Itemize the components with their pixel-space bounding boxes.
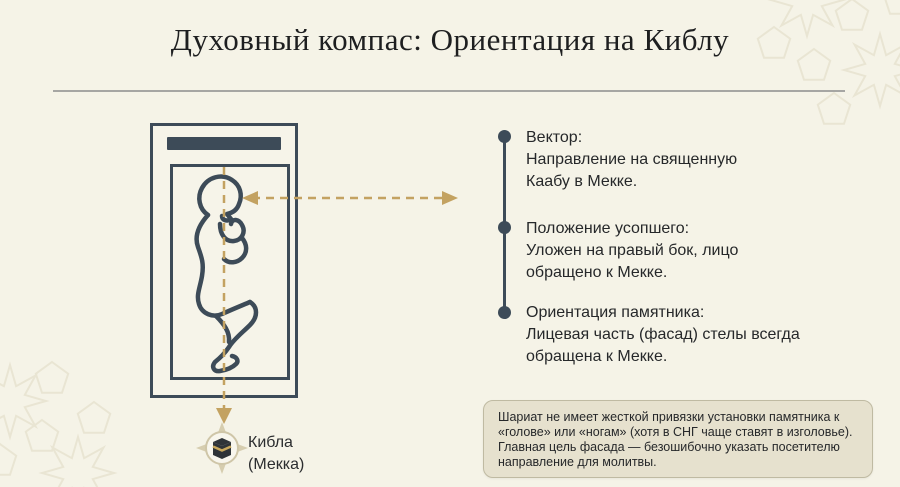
timeline-item-position: Положение усопшего: Уложен на правый бок… [526,218,871,284]
figure-leg [213,302,256,371]
qibla-label-line1: Кибла [248,432,304,454]
qibla-compass-icon [195,421,251,477]
figure-leg-2 [216,316,229,342]
slide-background: Духовный компас: Ориентация на Киблу [0,0,900,487]
ornament-pattern-bottom-left [0,357,138,487]
qibla-label: Кибла (Мекка) [248,432,304,476]
timeline-dot-2 [498,221,511,234]
timeline-item-title: Вектор: [526,127,871,149]
timeline-item-vector: Вектор: Направление на священную Каабу в… [526,127,871,193]
deceased-body-figure-icon [170,164,290,380]
timeline-item-orientation: Ориентация памятника: Лицевая часть (фас… [526,302,871,368]
timeline-item-body: Лицевая часть (фасад) стелы всегда обращ… [526,324,871,368]
timeline-item-body: Уложен на правый бок, лицо обращено к Ме… [526,240,871,284]
kaaba-icon [213,438,231,459]
page-title: Духовный компас: Ориентация на Киблу [0,22,900,58]
timeline-item-title: Положение усопшего: [526,218,871,240]
note-text: Шариат не имеет жесткой привязки установ… [498,410,858,470]
right-arrowhead-icon [442,191,458,205]
timeline-dot-3 [498,306,511,319]
qibla-label-line2: (Мекка) [248,454,304,476]
figure-arm [220,220,246,262]
figure-head [199,177,240,221]
headstone-bar [167,137,281,150]
note-box: Шариат не имеет жесткой привязки установ… [483,400,873,478]
timeline-item-body: Направление на священную Каабу в Мекке. [526,149,871,193]
title-divider [53,90,845,92]
timeline-item-title: Ориентация памятника: [526,302,871,324]
timeline-dot-1 [498,130,511,143]
ornament-pattern-top-right [752,0,900,132]
